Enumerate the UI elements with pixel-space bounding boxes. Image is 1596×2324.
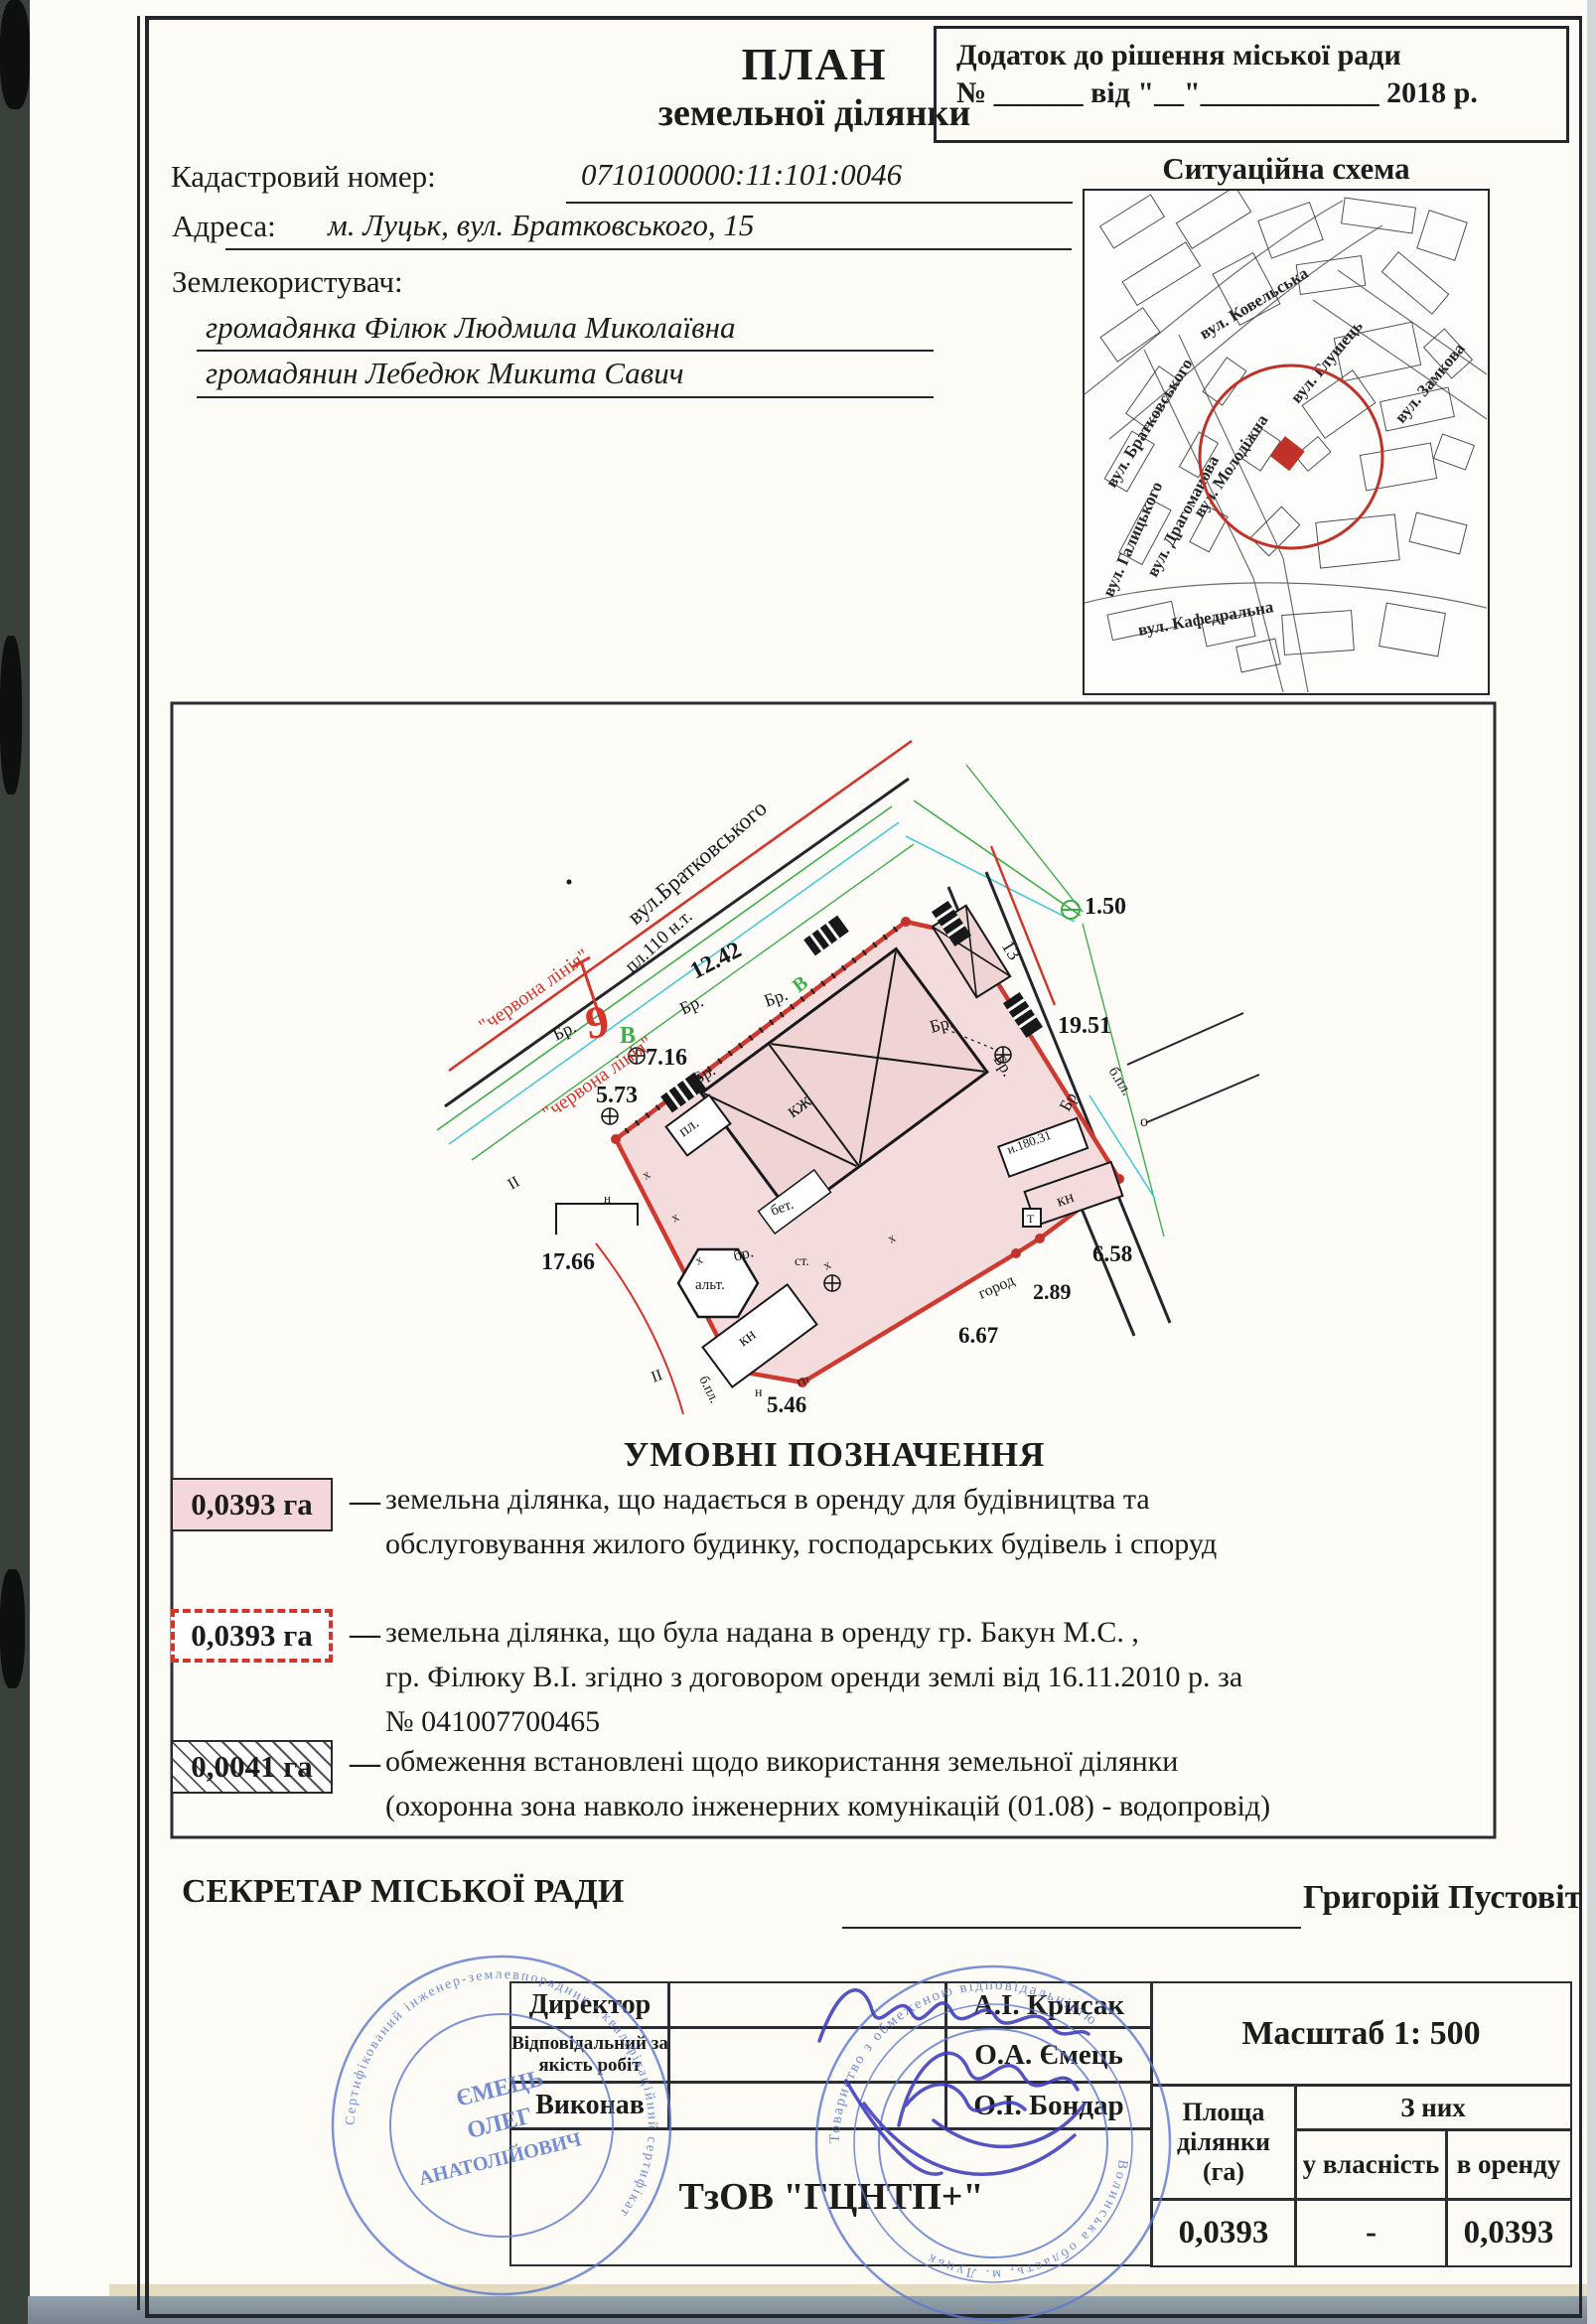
- dim-1766: 17.66: [541, 1249, 595, 1275]
- situation-title: Ситуаційна схема: [1083, 151, 1490, 187]
- annex-line1: Додаток до рішення міської ради: [956, 37, 1552, 74]
- legend-text-2-line2: гр. Філюку В.І. згідно з договором оренд…: [385, 1655, 1468, 1699]
- cadastral-underline: [566, 202, 1073, 204]
- secretary-label: СЕКРЕТАР МІСЬКОЇ РАДИ: [182, 1873, 624, 1911]
- dim-667: 6.67: [958, 1323, 998, 1348]
- cadastral-value: 0710100000:11:101:0046: [581, 157, 902, 193]
- legend-title: УМОВНІ ПОЗНАЧЕННЯ: [437, 1435, 1232, 1475]
- landuser-1: громадянка Філюк Людмила Миколаївна: [206, 310, 736, 346]
- dim-573: 5.73: [596, 1083, 638, 1108]
- o-label: о: [1140, 1113, 1148, 1130]
- legend-text-1: земельна ділянка, що надається в оренду …: [385, 1477, 1448, 1566]
- scale-cell: Масштаб 1: 500: [1150, 1981, 1572, 2087]
- map-location-marker: [1270, 436, 1305, 471]
- n-label-2: н: [604, 1191, 611, 1206]
- map-street-zamkova: вул. Замкова: [1391, 339, 1470, 427]
- annex-line2: № ______ від "__"____________ 2018 р.: [956, 74, 1552, 112]
- legend-dash-1: —: [350, 1483, 380, 1519]
- address-underline: [225, 248, 1072, 250]
- name-yemets: О.А. Ємець: [944, 2026, 1153, 2084]
- ownership-cell: у власність: [1294, 2128, 1448, 2201]
- ownership-value: -: [1294, 2198, 1448, 2267]
- t-label: Т: [1027, 1212, 1035, 1226]
- dim-1951: 19.51: [1058, 1013, 1111, 1039]
- name-krysak: А.І. Крисак: [944, 1981, 1153, 2029]
- name-bondar: О.І. Бондар: [944, 2081, 1153, 2130]
- st-label: ст.: [795, 1254, 809, 1269]
- dim-546: 5.46: [767, 1392, 806, 1417]
- landuser-underline-1: [197, 350, 934, 352]
- map-buildings: [1100, 191, 1475, 672]
- legend-text-3: обмеження встановлені щодо використання …: [385, 1739, 1468, 1828]
- company-name: ТзОВ "ГЦНТП+": [509, 2127, 1153, 2266]
- role-executor: Виконав: [509, 2081, 670, 2130]
- legend-text-1-line1: земельна ділянка, що надається в оренду …: [385, 1477, 1448, 1522]
- document-border-inner: [137, 16, 140, 2310]
- landuser-underline-2: [197, 396, 934, 398]
- legend-swatch-prev-lease: 0,0393 га: [171, 1609, 333, 1663]
- legend-text-2: земельна ділянка, що була надана в оренд…: [385, 1610, 1468, 1744]
- legend-text-3-line2: (охоронна зона навколо інженерних комуні…: [385, 1784, 1468, 1828]
- map-street-dragomanova: вул. Драгоманова: [1143, 452, 1224, 580]
- lease-value: 0,0393: [1445, 2198, 1572, 2267]
- area-header-cell: Площа ділянки (га): [1150, 2084, 1297, 2201]
- legend-swatch-lease: 0,0393 га: [171, 1478, 333, 1531]
- sign-cell-1: [667, 1981, 947, 2029]
- legend-text-2-line1: земельна ділянка, що була надана в оренд…: [385, 1610, 1468, 1655]
- dim-716: 7.16: [646, 1045, 687, 1071]
- cadastral-label: Кадастровий номер:: [171, 159, 436, 195]
- dim-658: 6.58: [1092, 1241, 1132, 1266]
- lease-cell: в оренду: [1445, 2128, 1572, 2201]
- alt-label: альт.: [695, 1277, 725, 1293]
- landuser-2: громадянин Лебедюк Микита Савич: [206, 356, 683, 391]
- legend-dash-2: —: [350, 1616, 380, 1652]
- secretary-name: Григорій Пустовіт: [1303, 1879, 1581, 1917]
- area-value: 0,0393: [1150, 2198, 1297, 2267]
- map-street-bratkovskogo: вул. Братковського: [1101, 355, 1196, 491]
- secretary-sign-line: [842, 1927, 1301, 1929]
- scan-edge-left: [0, 0, 30, 2324]
- sign-cell-3: [667, 2081, 947, 2130]
- legend-text-2-line3: № 041007700465: [385, 1699, 1468, 1744]
- legend-dash-3: —: [350, 1745, 380, 1781]
- annex-box: Додаток до рішення міської ради № ______…: [934, 26, 1569, 143]
- dim-150: 1.50: [1085, 894, 1126, 920]
- legend-text-3-line1: обмеження встановлені щодо використання …: [385, 1739, 1468, 1784]
- scan-edge-right: [1587, 0, 1596, 2324]
- dim-289: 2.89: [1033, 1279, 1072, 1304]
- map-street-glushets: вул. Глушець: [1287, 317, 1367, 407]
- role-quality: Відповідальний за якість робіт: [509, 2026, 670, 2084]
- green-B-1: В: [620, 1023, 636, 1049]
- landuser-label: Землекористувач:: [172, 264, 403, 300]
- map-street-galytskogo: вул. Галицького: [1098, 479, 1166, 600]
- scanned-land-plan-document: ПЛАН земельної ділянки Додаток до рішенн…: [0, 0, 1596, 2324]
- situation-map: вул. Ковельська вул. Братковського вул. …: [1083, 189, 1490, 695]
- sign-cell-2: [667, 2026, 947, 2084]
- legend-text-1-line2: обслуговування жилого будинку, господарс…: [385, 1522, 1448, 1566]
- legend-swatch-restriction: 0,0041 га: [171, 1740, 333, 1794]
- n-label-1: н: [755, 1385, 763, 1400]
- address-label: Адреса:: [172, 209, 276, 244]
- situation-map-drawing: вул. Ковельська вул. Братковського вул. …: [1085, 191, 1487, 692]
- role-director: Директор: [509, 1981, 670, 2029]
- of-them-cell: З них: [1294, 2084, 1572, 2131]
- address-value: м. Луцьк, вул. Братковського, 15: [328, 208, 754, 243]
